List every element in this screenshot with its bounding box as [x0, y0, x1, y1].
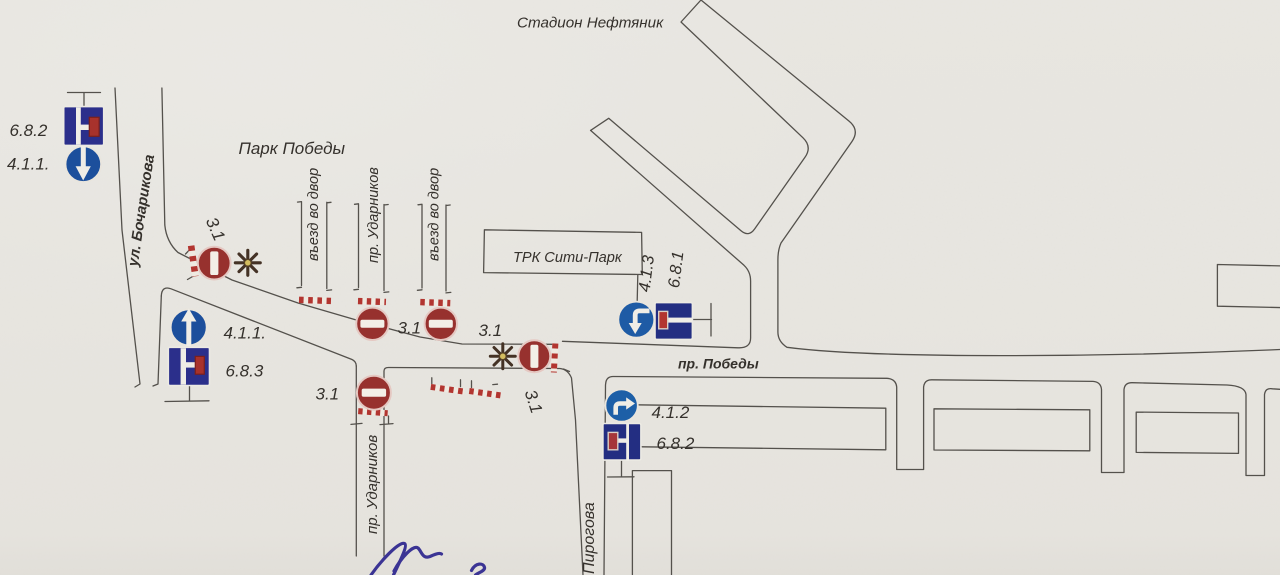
svg-text:3.1: 3.1 [398, 319, 422, 338]
svg-text:6.8.2: 6.8.2 [10, 121, 48, 140]
svg-text:4.1.1.: 4.1.1. [224, 324, 267, 343]
svg-text:4.1.1.: 4.1.1. [7, 155, 50, 174]
svg-text:пр. Победы: пр. Победы [678, 356, 759, 372]
svg-text:Парк Победы: Парк Победы [239, 139, 346, 158]
svg-text:въезд во двор: въезд во двор [306, 168, 322, 261]
svg-text:пр. Ударников: пр. Ударников [364, 435, 381, 534]
svg-text:6.8.3: 6.8.3 [226, 362, 264, 381]
svg-text:6.8.2: 6.8.2 [657, 434, 695, 453]
svg-text:Стадион Нефтяник: Стадион Нефтяник [517, 15, 664, 32]
svg-text:3.1: 3.1 [316, 385, 340, 404]
svg-text:пр. Ударников: пр. Ударников [366, 167, 382, 263]
svg-text:Пирогова: Пирогова [581, 502, 598, 574]
svg-text:3.1: 3.1 [479, 321, 503, 340]
svg-text:4.1.2: 4.1.2 [652, 403, 690, 422]
svg-text:въезд во двор: въезд во двор [427, 168, 443, 261]
svg-text:ТРК Сити-Парк: ТРК Сити-Парк [513, 250, 623, 266]
